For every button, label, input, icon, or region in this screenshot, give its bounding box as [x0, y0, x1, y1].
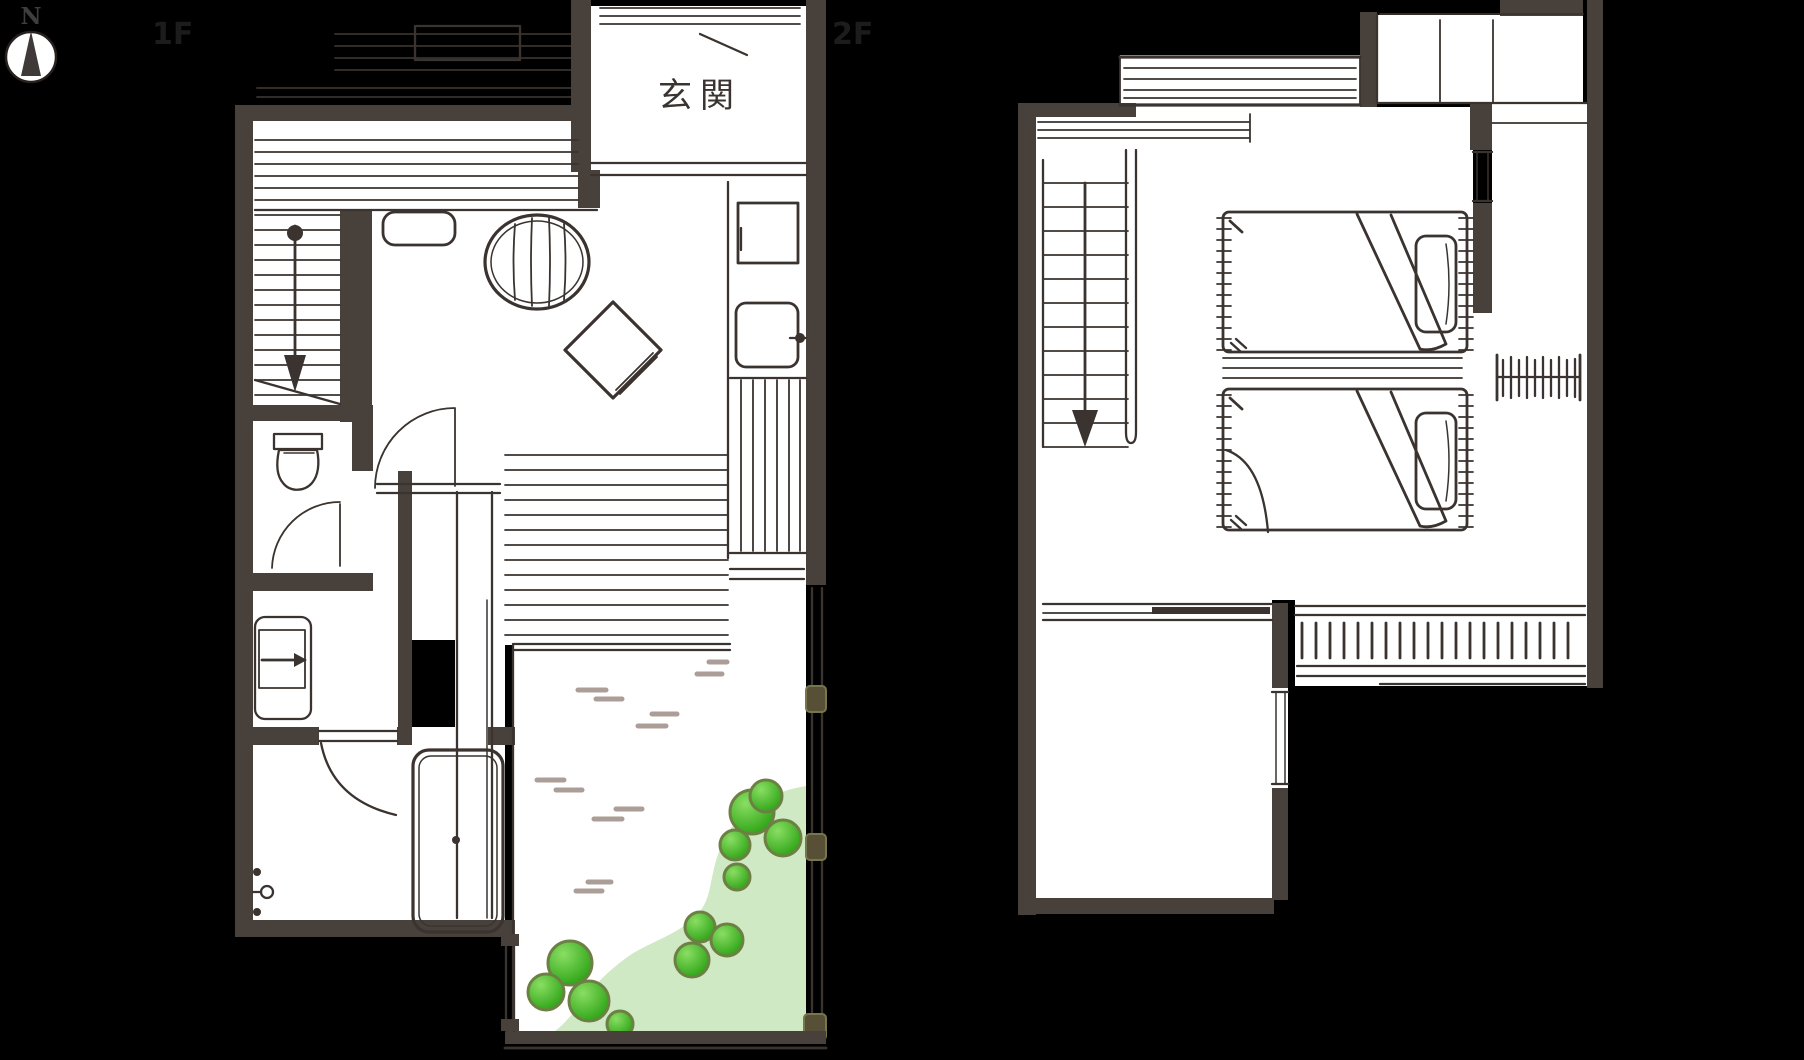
wood-deck — [505, 488, 806, 645]
second-floor-plan — [1018, 0, 1603, 915]
lower-room-window — [1272, 688, 1288, 788]
fence-post — [806, 686, 826, 712]
entrance-label: 玄関 — [658, 76, 742, 116]
top-window-band — [1120, 55, 1360, 107]
closet-corridor — [1492, 103, 1587, 600]
compass-n-letter: N — [20, 3, 41, 30]
first-floor-label: 1F — [152, 17, 193, 52]
exterior-sliding-doors — [257, 26, 588, 106]
closet-wall-window — [1473, 152, 1492, 201]
building-recess — [412, 640, 455, 727]
fence-post — [806, 834, 826, 860]
top-closet — [1377, 15, 1583, 103]
second-floor-label: 2F — [832, 17, 873, 52]
door-handle — [452, 836, 460, 844]
deck-box — [415, 26, 520, 60]
first-floor-plan: 玄関 — [235, 0, 826, 1048]
stair-arrow-origin — [287, 225, 303, 241]
floor-plan-canvas: 玄関 — [0, 0, 1804, 1060]
lower-room — [1136, 600, 1272, 900]
floor-plan-drawing: 玄関 — [0, 0, 1804, 1060]
compass: N — [6, 3, 56, 82]
